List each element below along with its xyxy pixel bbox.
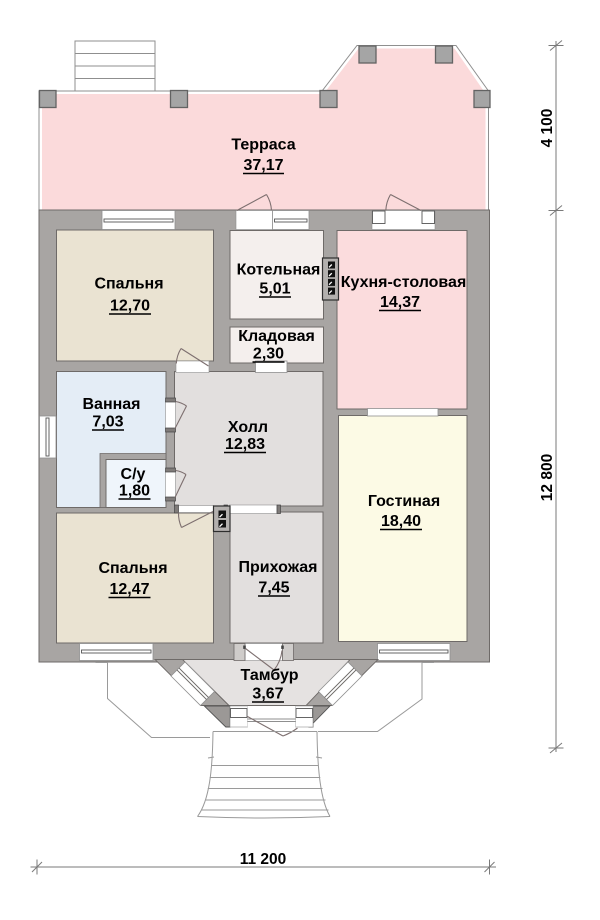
svg-text:4 100: 4 100 xyxy=(539,109,556,148)
svg-text:12,70: 12,70 xyxy=(110,298,150,315)
svg-text:5,01: 5,01 xyxy=(259,281,290,298)
svg-text:18,40: 18,40 xyxy=(381,513,421,530)
svg-text:2,30: 2,30 xyxy=(253,346,284,363)
svg-text:Ванная: Ванная xyxy=(82,396,140,413)
svg-text:Кладовая: Кладовая xyxy=(238,328,315,345)
svg-text:Котельная: Котельная xyxy=(237,262,321,279)
svg-text:Прихожая: Прихожая xyxy=(239,559,318,576)
svg-text:12,83: 12,83 xyxy=(225,436,265,453)
svg-text:Тамбур: Тамбур xyxy=(240,667,298,684)
svg-text:7,45: 7,45 xyxy=(258,580,289,597)
svg-text:3,67: 3,67 xyxy=(252,686,283,703)
svg-text:С/у: С/у xyxy=(121,466,146,483)
svg-text:Спальня: Спальня xyxy=(98,560,167,577)
svg-text:Терраса: Терраса xyxy=(231,137,295,154)
svg-text:12,47: 12,47 xyxy=(109,581,149,598)
svg-text:Холл: Холл xyxy=(228,419,268,436)
svg-text:Кухня-столовая: Кухня-столовая xyxy=(341,274,467,291)
svg-text:1,80: 1,80 xyxy=(119,483,150,500)
svg-text:Гостиная: Гостиная xyxy=(368,493,440,510)
svg-text:Спальня: Спальня xyxy=(94,276,163,293)
svg-text:37,17: 37,17 xyxy=(243,157,283,174)
svg-text:11 200: 11 200 xyxy=(240,851,287,868)
svg-text:14,37: 14,37 xyxy=(380,294,420,311)
svg-text:7,03: 7,03 xyxy=(92,414,123,431)
svg-text:12 800: 12 800 xyxy=(539,454,556,501)
